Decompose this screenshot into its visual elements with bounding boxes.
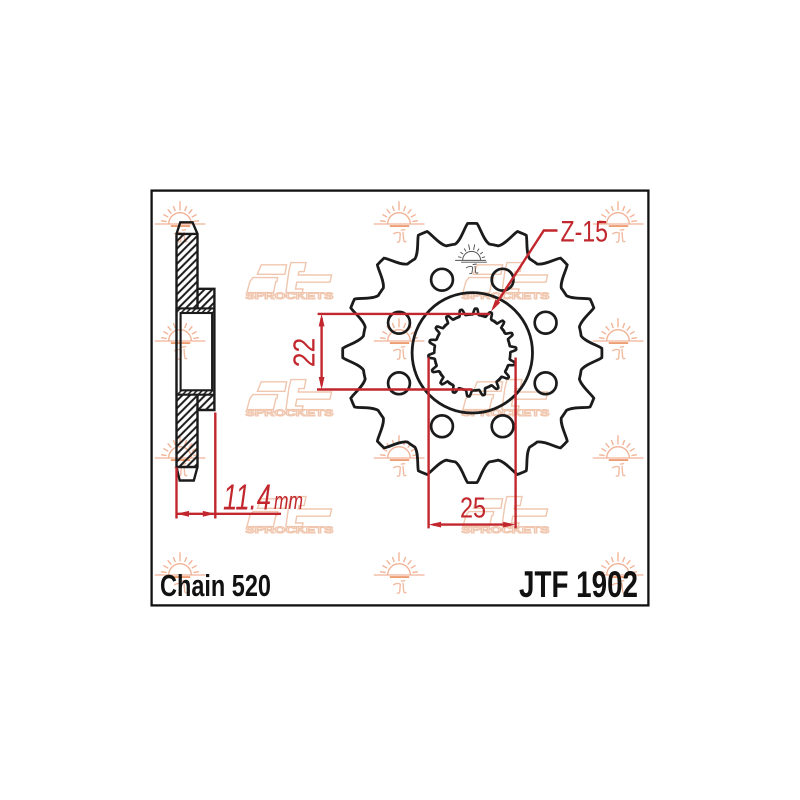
svg-text:Chain 520: Chain 520 (160, 568, 271, 603)
svg-text:SPROCKETS: SPROCKETS (245, 408, 333, 419)
svg-text:11.4: 11.4 (223, 477, 271, 518)
svg-text:Z-15: Z-15 (561, 216, 609, 249)
svg-text:25: 25 (460, 493, 486, 525)
svg-text:JTF 1902: JTF 1902 (519, 564, 638, 605)
svg-text:mm: mm (274, 488, 303, 515)
svg-text:SPROCKETS: SPROCKETS (245, 291, 333, 302)
svg-text:SPROCKETS: SPROCKETS (245, 525, 333, 536)
svg-text:22: 22 (287, 338, 322, 368)
